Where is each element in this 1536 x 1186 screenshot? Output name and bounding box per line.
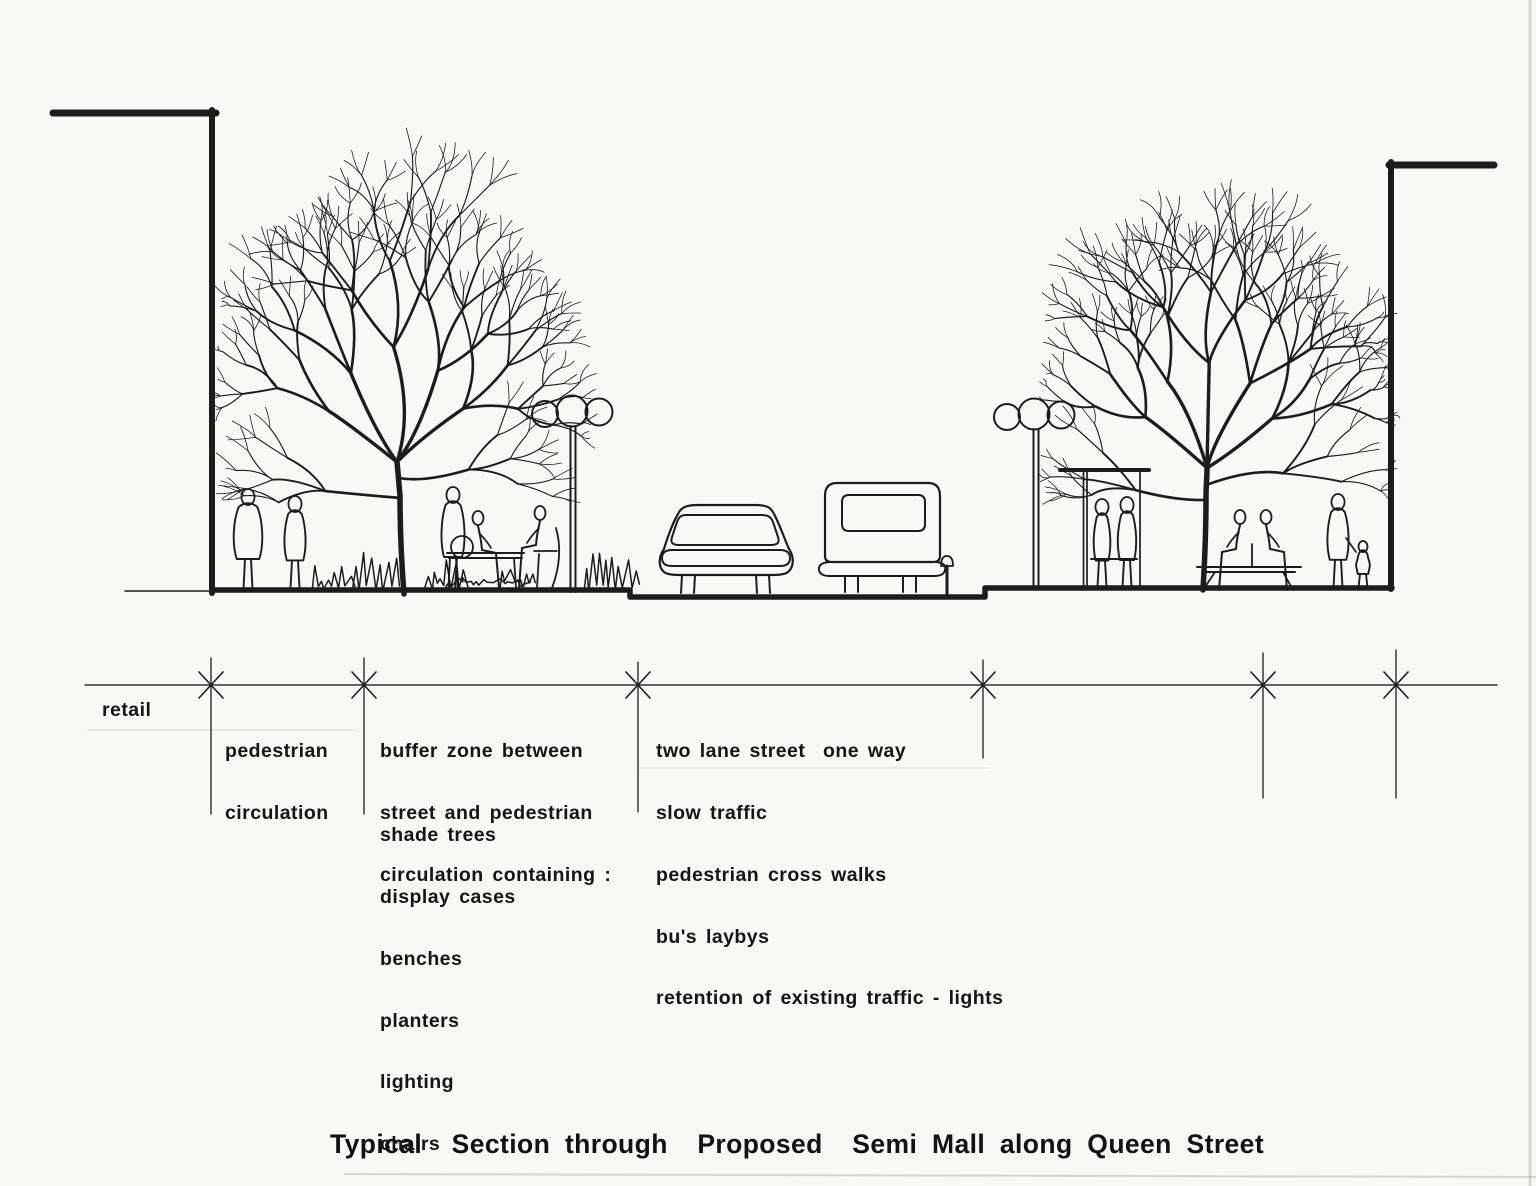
pedestrians-left (234, 489, 306, 589)
zone-label-pedestrian-circulation: pedestrian circulation (225, 700, 329, 865)
right-building (1389, 162, 1494, 589)
bus (819, 483, 945, 592)
drawing-title: Typical Section through Proposed Semi Ma… (330, 1129, 1264, 1159)
zone-label-line: two lane street one way (656, 741, 1003, 762)
buffer-item: lighting (380, 1072, 577, 1093)
table-group (441, 487, 559, 588)
scanned-section-drawing-page: retail pedestrian circulation buffer zon… (0, 0, 1536, 1186)
bench-group (1197, 510, 1301, 590)
zone-label-line: circulation (225, 803, 329, 824)
shelter-people (1094, 497, 1136, 587)
zone-label-line: retention of existing traffic - lights (656, 988, 1003, 1009)
car (660, 505, 793, 593)
zone-label-street: two lane street one way slow traffic ped… (656, 700, 1003, 1050)
buffer-item: shade trees (380, 825, 577, 846)
zone-label-line: bu's laybys (656, 927, 1003, 948)
buffer-items-list: shade trees display cases benches plante… (380, 784, 577, 1186)
right-tree (1039, 180, 1400, 590)
zone-label-line: pedestrian (225, 741, 329, 762)
buffer-item: planters (380, 1011, 577, 1032)
zone-label-line: buffer zone between (380, 741, 611, 762)
zone-label-line: pedestrian cross walks (656, 865, 1003, 886)
buffer-item: benches (380, 949, 577, 970)
buffer-item: display cases (380, 887, 577, 908)
left-building (53, 110, 216, 593)
zone-label-retail: retail (102, 700, 151, 721)
woman-and-child (1327, 494, 1369, 588)
zone-label-line: slow traffic (656, 803, 1003, 824)
